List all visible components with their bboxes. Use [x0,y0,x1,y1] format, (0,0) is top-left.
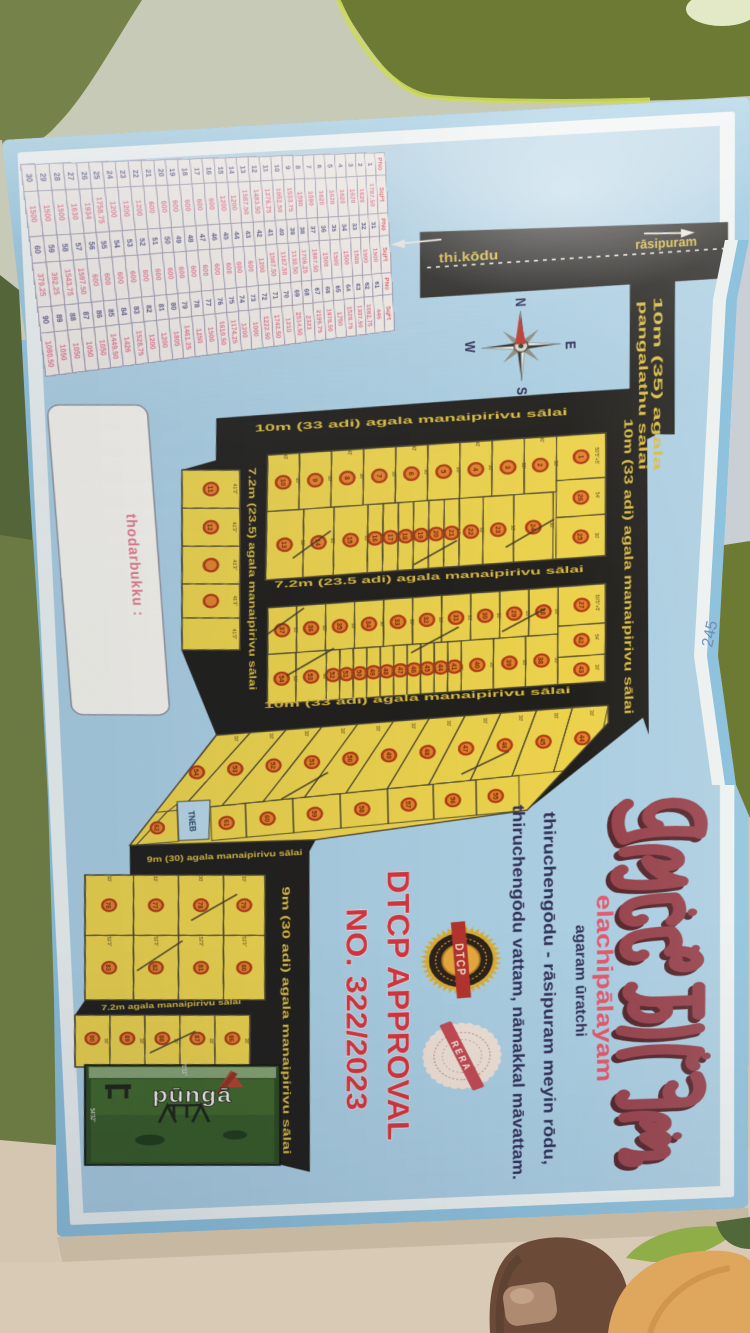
svg-text:542: 542 [721,605,739,616]
svg-text:30': 30' [593,532,599,538]
svg-text:30': 30' [481,718,487,724]
svg-text:41'3": 41'3" [231,560,237,571]
svg-text:15': 15' [409,532,415,538]
svg-text:30': 30' [208,1038,214,1044]
svg-text:44: 44 [577,735,586,742]
svg-text:agaram ūratchi: agaram ūratchi [572,925,589,1038]
svg-text:52'3": 52'3" [105,937,111,947]
svg-text:30': 30' [232,736,238,742]
svg-text:30': 30' [553,657,559,663]
svg-text:80: 80 [239,964,248,971]
svg-text:15': 15' [424,531,430,537]
svg-text:56: 56 [448,797,457,804]
svg-text:30': 30' [329,538,335,544]
svg-text:DTCP APPROVAL: DTCP APPROVAL [381,869,417,1140]
svg-text:15': 15' [349,672,355,678]
svg-text:15': 15' [390,669,396,675]
svg-text:30': 30' [489,662,495,668]
svg-text:S: S [514,387,530,396]
svg-text:52'3": 52'3" [152,937,158,947]
svg-text:15': 15' [403,668,409,674]
svg-text:10: 10 [278,478,287,486]
svg-text:10m (33 adi) agala manaipirivu: 10m (33 adi) agala manaipirivu sālai [621,418,635,714]
svg-text:30': 30' [588,710,594,716]
svg-text:77: 77 [151,902,160,909]
svg-text:25: 25 [576,533,585,541]
svg-text:39: 39 [504,659,513,666]
svg-text:42: 42 [577,636,586,644]
svg-text:8: 8 [342,476,351,480]
svg-text:thiruchengōdu - rāsipuram meyi: thiruchengōdu - rāsipuram meyin rōdu, [540,811,559,1165]
svg-text:15': 15' [454,529,460,535]
svg-text:30': 30' [487,465,493,472]
svg-text:2: 2 [535,463,544,467]
svg-text:37: 37 [277,626,286,634]
svg-text:38: 38 [537,657,546,664]
svg-text:52: 52 [269,762,278,769]
svg-text:15': 15' [457,664,463,670]
svg-text:15': 15' [376,670,382,676]
svg-text:30': 30' [521,660,527,666]
svg-text:30': 30' [445,720,451,726]
svg-text:30: 30 [480,612,489,620]
svg-text:40': 40' [474,440,480,447]
svg-text:87: 87 [193,1035,202,1042]
svg-text:50'5"+5': 50'5"+5' [593,594,599,611]
svg-text:45: 45 [539,738,548,745]
svg-text:30': 30' [519,462,525,469]
svg-text:78: 78 [196,902,205,909]
svg-text:11: 11 [206,485,215,492]
svg-text:30': 30' [553,608,559,614]
svg-text:3: 3 [503,465,512,469]
svg-text:35: 35 [335,622,344,630]
svg-text:57: 57 [404,801,413,808]
svg-text:89: 89 [123,1035,132,1042]
svg-text:30': 30' [408,619,414,625]
svg-text:4: 4 [471,467,480,471]
svg-text:12: 12 [206,523,215,531]
svg-text:30': 30' [509,525,515,531]
svg-text:30': 30' [437,617,443,623]
svg-text:55: 55 [491,792,500,799]
svg-text:30': 30' [321,625,327,631]
svg-text:48: 48 [423,748,432,755]
svg-text:54': 54' [593,492,599,499]
svg-text:52'3": 52'3" [240,937,246,947]
svg-text:62: 62 [152,824,161,831]
svg-text:30': 30' [423,469,429,476]
svg-text:30': 30' [339,728,345,734]
svg-text:51: 51 [307,758,316,765]
svg-text:30': 30' [363,535,369,541]
svg-text:27: 27 [577,601,586,609]
svg-text:13: 13 [280,541,289,549]
svg-text:1: 1 [576,455,585,459]
svg-text:15: 15 [346,536,355,544]
svg-text:41'3": 41'3" [231,484,237,495]
svg-text:DTCP: DTCP [452,943,468,978]
svg-text:46: 46 [500,741,509,748]
svg-text:30': 30' [138,1038,144,1044]
svg-text:30': 30' [359,473,365,480]
svg-text:54'32": 54'32" [89,1108,96,1122]
svg-text:41'3": 41'3" [231,629,237,640]
svg-text:15': 15' [430,666,436,672]
svg-text:30': 30' [495,613,501,619]
svg-text:30': 30' [478,527,484,533]
svg-text:54: 54 [277,675,286,682]
svg-text:7: 7 [374,474,383,478]
svg-text:40: 40 [472,661,481,668]
svg-text:81: 81 [196,964,205,971]
svg-text:41'3": 41'3" [231,596,237,607]
svg-text:9: 9 [310,478,319,482]
svg-text:26: 26 [576,494,585,502]
svg-text:61: 61 [222,819,231,826]
svg-text:30': 30' [552,713,558,719]
svg-text:76: 76 [104,902,113,909]
svg-text:30': 30' [552,460,558,467]
svg-text:30': 30' [292,627,298,633]
svg-text:23: 23 [493,526,502,534]
svg-text:30': 30' [524,611,530,617]
svg-text:30': 30' [391,471,397,478]
svg-text:43: 43 [576,666,585,673]
svg-text:245: 245 [709,614,737,631]
svg-text:30': 30' [105,876,111,882]
svg-text:54: 54 [192,769,201,776]
svg-text:40': 40' [538,436,544,443]
svg-text:30': 30' [240,876,246,882]
svg-text:30': 30' [517,715,523,721]
svg-text:33: 33 [393,618,402,626]
svg-text:40': 40' [410,445,416,452]
svg-text:thiruchengōdu vattam, nāmakkal: thiruchengōdu vattam, nāmakkal māvattam. [509,804,528,1180]
svg-text:30': 30' [321,673,327,679]
svg-text:pangalathu salai: pangalathu salai [636,301,651,471]
svg-text:NO. 322/2023: NO. 322/2023 [340,908,373,1111]
svg-text:15': 15' [439,530,445,536]
svg-text:50'5"+5': 50'5"+5' [593,447,599,464]
svg-text:15': 15' [393,533,399,539]
svg-text:5: 5 [439,470,448,474]
svg-text:30': 30' [243,1038,249,1044]
svg-text:41'3": 41'3" [231,522,237,533]
svg-text:31: 31 [451,614,460,622]
svg-text:34: 34 [364,620,373,628]
svg-text:6: 6 [406,472,415,476]
svg-text:pūngā: pūngā [152,1084,232,1107]
svg-text:50: 50 [346,755,355,762]
svg-text:W: W [462,341,478,354]
svg-text:10m (35) agala: 10m (35) agala [651,297,666,472]
svg-text:32: 32 [422,616,431,624]
svg-text:30': 30' [374,725,380,731]
svg-text:52'3": 52'3" [197,937,203,947]
svg-text:30': 30' [152,876,158,882]
svg-text:30': 30' [291,676,297,682]
svg-text:15': 15' [417,667,423,673]
svg-text:30': 30' [103,1038,109,1044]
svg-text:59: 59 [310,810,319,817]
svg-text:30': 30' [455,467,461,474]
svg-text:40': 40' [346,449,352,456]
svg-text:30': 30' [298,540,304,546]
svg-text:58: 58 [357,805,366,812]
svg-text:36: 36 [306,624,315,632]
svg-text:15': 15' [363,671,369,677]
svg-text:86: 86 [228,1035,237,1042]
svg-text:47: 47 [461,745,470,752]
svg-text:30': 30' [267,733,273,739]
svg-text:30': 30' [326,475,332,482]
svg-text:30': 30' [410,723,416,729]
svg-text:E: E [562,341,578,350]
svg-text:53: 53 [230,765,239,772]
svg-text:30': 30' [593,664,599,670]
svg-text:88: 88 [157,1035,166,1042]
svg-text:9m (30 adi) agala manaipirivu: 9m (30 adi) agala manaipirivu sālai [279,886,292,1154]
svg-text:7.2m (23.5) agala manaipirivu: 7.2m (23.5) agala manaipirivu sālai [246,467,257,690]
svg-text:82: 82 [151,964,160,971]
svg-text:83: 83 [104,964,113,971]
svg-text:30': 30' [379,621,385,627]
svg-text:29: 29 [509,610,518,618]
svg-text:49: 49 [384,752,393,759]
svg-text:22: 22 [466,528,475,536]
svg-text:elachipālayam: elachipālayam [592,894,618,1082]
svg-text:40': 40' [282,453,288,460]
svg-text:15': 15' [336,673,342,679]
svg-text:76'11": 76'11" [180,1062,187,1076]
svg-text:15': 15' [378,534,384,540]
svg-text:30': 30' [350,623,356,629]
svg-text:30': 30' [466,615,472,621]
svg-text:54': 54' [593,634,599,640]
svg-text:79: 79 [239,902,248,909]
svg-text:90: 90 [88,1035,97,1042]
svg-text:15': 15' [444,665,450,671]
svg-text:60: 60 [263,815,272,822]
svg-text:30': 30' [294,477,300,484]
svg-text:53: 53 [306,673,315,680]
svg-text:30': 30' [303,731,309,737]
svg-text:30': 30' [197,876,203,882]
svg-text:N: N [512,298,528,308]
